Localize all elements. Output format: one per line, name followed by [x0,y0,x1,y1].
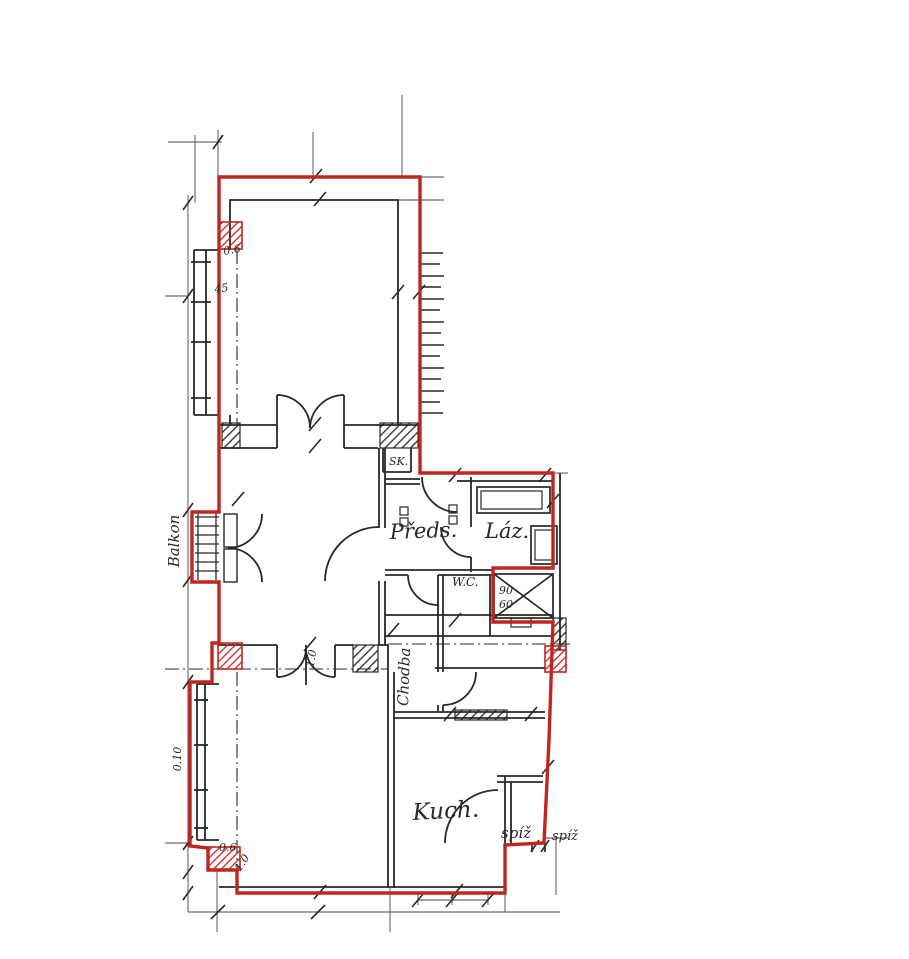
double-door-top-room [277,395,310,428]
label-wc: W.C. [452,575,479,589]
label-spiz: spíž [501,824,531,842]
entrance-door [422,477,457,512]
dimension-labels: 0.6 45 0.10 0.6 1.0 1.0 90 60 [171,242,513,874]
label-sk: SK. [389,455,408,468]
dim-bay-depth: 0.10 [171,747,184,772]
dim-top-left-depth: 0.6 [222,242,241,258]
floor-plan-canvas: Balkon SK. Předs. Láz. W.C. Chodba Kuch.… [0,0,909,959]
dim-door-width: 1.0 [304,649,320,668]
label-chodba: Chodba [394,647,414,706]
label-predsin: Předs. [388,518,457,544]
nook-door [443,672,476,705]
dim-shaft-h: 60 [499,598,513,611]
living-room-door [325,527,379,581]
wall-hatch-red [208,222,566,870]
interior-walls [191,200,560,888]
label-lazen: Láz. [484,519,529,543]
dim-shaft-w: 90 [499,584,513,597]
double-door-bottom-room [277,648,306,677]
staircase-steps [421,253,444,413]
label-balkon: Balkon [165,515,183,569]
label-kuchyn: Kuch. [411,797,480,826]
dim-top-left-width: 45 [213,281,230,296]
dim-bottom-left-a: 0.6 [219,841,237,854]
balcony-railing [195,512,219,580]
label-spiz-neighbor: spíž [552,829,578,844]
floor-plan-drawing: Balkon SK. Předs. Láz. W.C. Chodba Kuch.… [0,0,909,959]
wc-door [408,575,438,605]
balcony-door [228,514,262,548]
door-arcs [228,395,498,843]
